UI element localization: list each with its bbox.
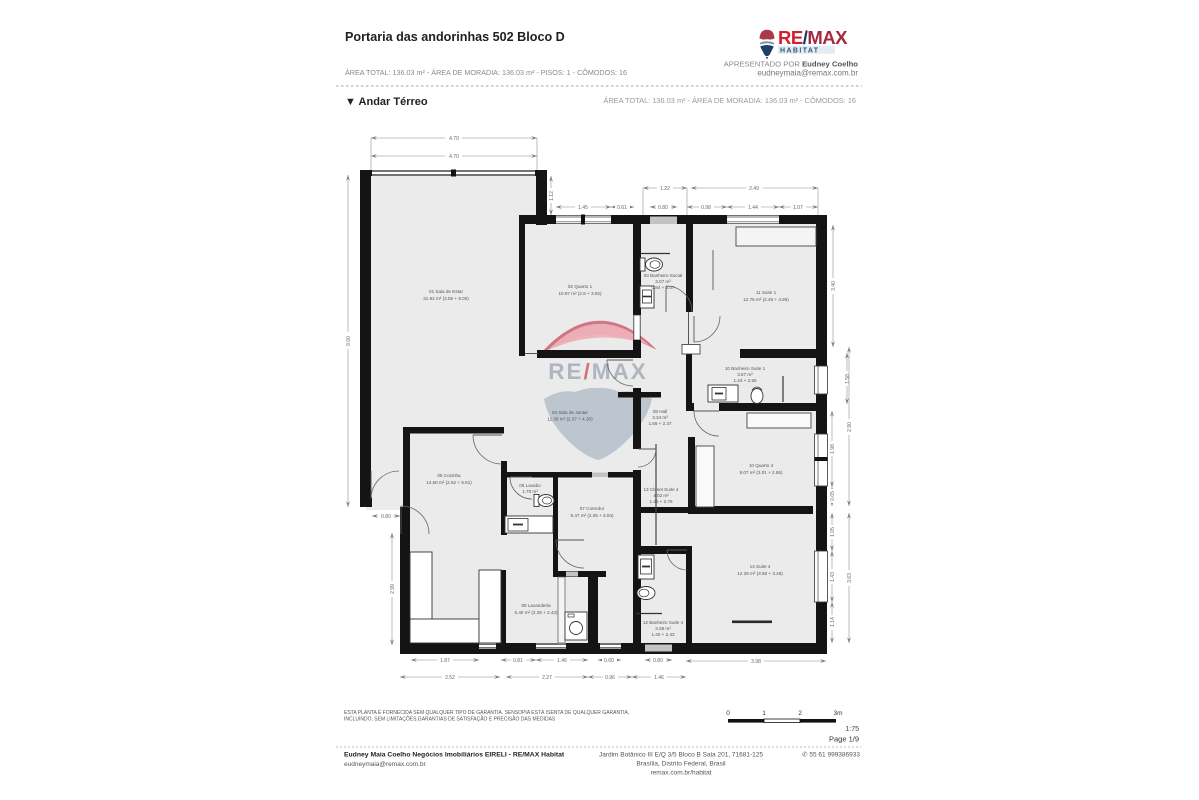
svg-text:1.66 + 2.37: 1.66 + 2.37	[648, 421, 672, 426]
svg-text:03 Banheiro Social: 03 Banheiro Social	[644, 273, 683, 278]
svg-text:eudneymaia@remax.com.br: eudneymaia@remax.com.br	[757, 69, 858, 78]
svg-text:4.70: 4.70	[449, 136, 459, 142]
svg-text:Eudney Maia Coelho Negócios Im: Eudney Maia Coelho Negócios Imobiliários…	[344, 752, 565, 759]
svg-text:1.12: 1.12	[549, 191, 555, 201]
svg-text:4.70: 4.70	[449, 154, 459, 160]
svg-text:1.40 + 2.43: 1.40 + 2.43	[651, 632, 675, 637]
svg-text:3.98: 3.98	[751, 659, 761, 665]
svg-text:1: 1	[762, 710, 766, 717]
svg-text:1.46 + 2.76: 1.46 + 2.76	[649, 499, 673, 504]
svg-text:1.98: 1.98	[830, 444, 836, 454]
svg-text:3.34 m²: 3.34 m²	[652, 415, 668, 420]
svg-text:10 Banheiro Suite 1: 10 Banheiro Suite 1	[725, 366, 766, 371]
svg-text:0.80: 0.80	[381, 514, 391, 520]
svg-text:9.00: 9.00	[346, 336, 352, 346]
svg-text:05 Cozinha: 05 Cozinha	[437, 473, 461, 478]
svg-text:0.60: 0.60	[604, 658, 614, 664]
svg-text:INCLUINDO, SEM LIMITAÇÕES,GARA: INCLUINDO, SEM LIMITAÇÕES,GARANTIAS DE S…	[344, 716, 556, 723]
svg-text:1.44 + 2.55: 1.44 + 2.55	[733, 378, 757, 383]
svg-text:0.84 + 3.07: 0.84 + 3.07	[651, 285, 675, 290]
svg-text:5.47 m² (2.05 + 3.04): 5.47 m² (2.05 + 3.04)	[570, 513, 613, 518]
svg-text:1.14: 1.14	[830, 617, 836, 627]
svg-text:1.07: 1.07	[793, 205, 803, 211]
svg-text:1.58: 1.58	[845, 374, 851, 384]
svg-text:07 Corredor: 07 Corredor	[580, 506, 605, 511]
svg-text:1.22: 1.22	[660, 186, 670, 192]
svg-text:0.65: 0.65	[830, 491, 836, 501]
svg-text:✆ 55 61 999386933: ✆ 55 61 999386933	[802, 751, 860, 759]
svg-text:01 Sala de Estar: 01 Sala de Estar	[429, 289, 463, 294]
svg-text:08 Hall: 08 Hall	[653, 409, 667, 414]
svg-text:1.87: 1.87	[440, 658, 450, 664]
svg-text:0.80: 0.80	[653, 658, 663, 664]
svg-text:14 Suite 4: 14 Suite 4	[750, 564, 771, 569]
svg-text:5.40 m² (2.28 + 2.43): 5.40 m² (2.28 + 2.43)	[514, 610, 557, 615]
svg-text:13 Closet Suite 4: 13 Closet Suite 4	[644, 487, 679, 492]
svg-text:3.07 m²: 3.07 m²	[655, 279, 671, 284]
svg-text:0.61: 0.61	[617, 205, 627, 211]
svg-text:12.28 m² (3.58 + 3.46): 12.28 m² (3.58 + 3.46)	[737, 571, 783, 576]
svg-text:09 Lavanderia: 09 Lavanderia	[521, 603, 551, 608]
svg-text:1.46: 1.46	[557, 658, 567, 664]
svg-text:Brasília, Distrito Federal, Br: Brasília, Distrito Federal, Brasil	[636, 761, 726, 768]
svg-text:2.52: 2.52	[445, 675, 455, 681]
svg-text:2.90: 2.90	[847, 422, 853, 432]
svg-text:14.50 m² (2.52 + 5.81): 14.50 m² (2.52 + 5.81)	[426, 480, 472, 485]
svg-text:3.63: 3.63	[847, 573, 853, 583]
svg-text:remax.com.br/habitat: remax.com.br/habitat	[650, 770, 711, 777]
svg-text:1.44: 1.44	[748, 205, 758, 211]
svg-text:1:75: 1:75	[845, 726, 859, 733]
svg-text:ESTA PLANTA É FORNECIDA SEM QU: ESTA PLANTA É FORNECIDA SEM QUALQUER TIP…	[344, 709, 629, 716]
svg-text:3.38 m²: 3.38 m²	[655, 626, 671, 631]
svg-text:11 Suite 1: 11 Suite 1	[756, 290, 777, 295]
svg-text:Jardim Botânico III E/Q 3/5 Bl: Jardim Botânico III E/Q 3/5 Bloco B Sala…	[599, 752, 763, 759]
svg-text:3.40: 3.40	[831, 281, 837, 291]
svg-text:3.67 m²: 3.67 m²	[737, 372, 753, 377]
svg-text:10 Quarto 4: 10 Quarto 4	[749, 463, 774, 468]
svg-text:0.81: 0.81	[513, 658, 523, 664]
svg-text:ÁREA TOTAL: 136.03 m² - ÁREA D: ÁREA TOTAL: 136.03 m² - ÁREA DE MORADIA:…	[603, 96, 856, 105]
svg-text:1.46: 1.46	[654, 675, 664, 681]
svg-text:12.76 m² (2.49 + 4.96): 12.76 m² (2.49 + 4.96)	[743, 297, 789, 302]
svg-text:HABITAT: HABITAT	[780, 47, 819, 54]
svg-text:0: 0	[726, 710, 730, 717]
svg-text:0.98: 0.98	[701, 205, 711, 211]
svg-text:Portaria das andorinhas 502 Bl: Portaria das andorinhas 502 Bloco D	[345, 30, 565, 44]
svg-text:2.49: 2.49	[749, 186, 759, 192]
svg-text:12 Banheiro Suite 4: 12 Banheiro Suite 4	[643, 620, 684, 625]
svg-text:0.96: 0.96	[605, 675, 615, 681]
svg-text:04 Sala de Jantar: 04 Sala de Jantar	[552, 410, 588, 415]
svg-text:APRESENTADO POR Eudney Coelho: APRESENTADO POR Eudney Coelho	[724, 60, 859, 69]
svg-text:1.05: 1.05	[830, 527, 836, 537]
svg-text:2: 2	[798, 710, 802, 717]
svg-text:2.27: 2.27	[542, 675, 552, 681]
svg-text:Page 1/9: Page 1/9	[829, 735, 859, 744]
svg-text:02 Quarto 1: 02 Quarto 1	[568, 284, 593, 289]
svg-text:11.36 m² (2.37 + 4.30): 11.36 m² (2.37 + 4.30)	[547, 417, 593, 422]
svg-text:ÁREA TOTAL: 136.03 m² - ÁREA D: ÁREA TOTAL: 136.03 m² - ÁREA DE MORADIA:…	[345, 68, 627, 77]
svg-text:RE/MAX: RE/MAX	[548, 359, 648, 384]
svg-text:▼ Andar Térreo: ▼ Andar Térreo	[345, 96, 428, 108]
svg-text:31.92 m² (3.55 + 9.00): 31.92 m² (3.55 + 9.00)	[423, 296, 469, 301]
svg-text:4.02 m²: 4.02 m²	[653, 493, 669, 498]
svg-text:1.45: 1.45	[578, 205, 588, 211]
svg-text:1.43: 1.43	[830, 572, 836, 582]
svg-text:10.97 m² (2.8 + 3.92): 10.97 m² (2.8 + 3.92)	[558, 291, 601, 296]
svg-text:9.07 m² (3.01 + 2.65): 9.07 m² (3.01 + 2.65)	[739, 470, 782, 475]
svg-text:06 Lavabo: 06 Lavabo	[519, 483, 541, 488]
svg-text:3m: 3m	[833, 710, 842, 717]
svg-text:eudneymaia@remax.com.br: eudneymaia@remax.com.br	[344, 761, 427, 768]
svg-text:RE/MAX: RE/MAX	[778, 27, 848, 48]
svg-text:2.99: 2.99	[390, 584, 396, 594]
svg-text:1.70 m²: 1.70 m²	[522, 489, 538, 494]
svg-text:0.80: 0.80	[658, 205, 668, 211]
